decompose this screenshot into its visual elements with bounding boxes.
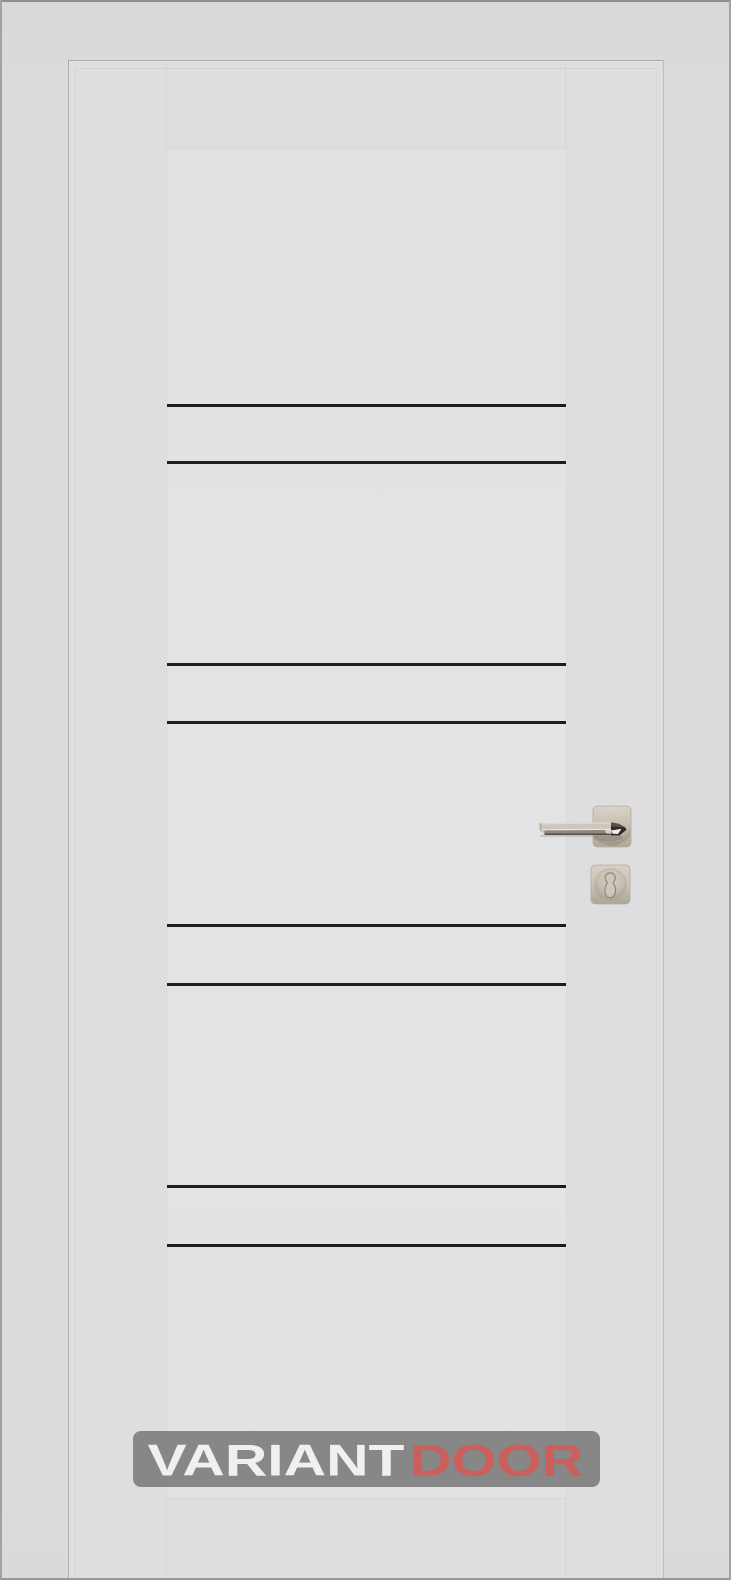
svg-text:VARIANT: VARIANT: [148, 1437, 405, 1486]
svg-text:DOOR: DOOR: [410, 1437, 584, 1486]
